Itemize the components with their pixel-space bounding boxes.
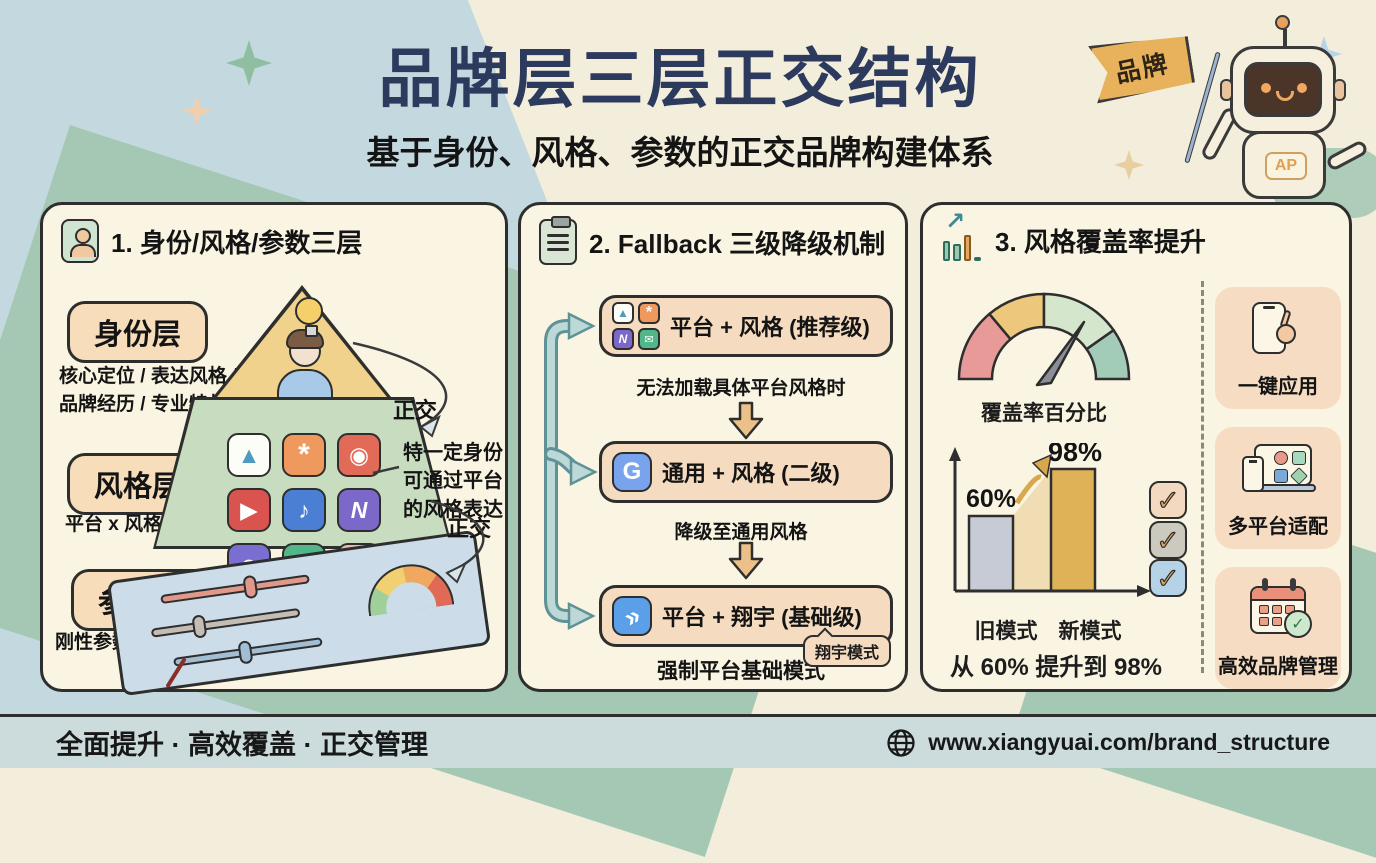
check-badge: ✓	[1149, 481, 1187, 519]
footer-site: www.xiangyuai.com/brand_structure	[886, 728, 1330, 758]
robot-mascot: 品牌 AP	[1138, 10, 1368, 205]
bar-old-mode	[969, 516, 1013, 591]
down-arrow-icon	[727, 541, 765, 581]
footer-url: www.xiangyuai.com/brand_structure	[928, 729, 1330, 756]
platform-icon: *	[638, 302, 660, 324]
page-subtitle: 基于身份、风格、参数的正交品牌构建体系	[280, 126, 1080, 174]
gauge-label: 覆盖率百分比	[939, 397, 1149, 427]
robot-eye	[1297, 83, 1307, 93]
platform-icon: ◉	[337, 433, 381, 477]
panel-coverage: ↗ 3. 风格覆盖率提升 覆盖率百分比 60% 98% 旧模式 新模式 从 60…	[920, 202, 1352, 692]
bar-new-label: 新模式	[1047, 615, 1133, 645]
benefit-card-one-tap: 一键应用	[1215, 287, 1341, 409]
platform-icon: ▲	[612, 302, 634, 324]
bar-old-value: 60%	[966, 485, 1016, 513]
slider-knob	[191, 614, 207, 639]
fallback-step-2: G 通用 + 风格 (二级)	[599, 441, 893, 503]
platform-icon: ▶	[227, 488, 271, 532]
robot-right-arm	[1325, 139, 1369, 172]
avatar-body	[277, 369, 333, 401]
panel2-header: 2. Fallback 三级降级机制	[539, 219, 885, 265]
step2-caption: 降级至通用风格	[591, 517, 891, 544]
platform-icon: ▲	[227, 433, 271, 477]
flag-label: 品牌	[1112, 44, 1172, 90]
calendar-check-icon: ✓	[1238, 578, 1318, 650]
footer-slogan: 全面提升 · 高效覆盖 · 正交管理	[56, 723, 428, 762]
bar-old-label: 旧模式	[963, 615, 1049, 645]
param-slider	[173, 637, 323, 667]
benefit-card-multi-platform: 多平台适配	[1215, 427, 1341, 549]
check-badge: ✓	[1149, 521, 1187, 559]
globe-icon	[886, 728, 916, 758]
robot-body: AP	[1242, 131, 1326, 199]
robot-antenna-ball	[1275, 15, 1290, 30]
robot-ear	[1333, 79, 1346, 101]
platform-mini-grid: ▲ * N ✉	[612, 302, 660, 350]
panel3-title: 3. 风格覆盖率提升	[995, 222, 1206, 259]
step2-label: 通用 + 风格 (二级)	[662, 456, 840, 488]
devices-icon	[1238, 438, 1318, 510]
benefit-label: 一键应用	[1238, 370, 1318, 399]
platform-icon: N	[337, 488, 381, 532]
benefit-label: 高效品牌管理	[1218, 650, 1338, 679]
phone-tap-icon	[1238, 298, 1318, 370]
down-arrow-icon	[727, 401, 765, 441]
bar-new-mode	[1051, 469, 1095, 591]
growth-chart-icon: ↗	[941, 219, 983, 261]
slider-knob	[242, 575, 258, 600]
panel-fallback: 2. Fallback 三级降级机制 ▲ * N ✉ 平台 + 风格 (推荐级)…	[518, 202, 908, 692]
step3-label: 平台 + 翔宇 (基础级)	[662, 600, 862, 632]
panel2-title: 2. Fallback 三级降级机制	[589, 224, 885, 261]
mini-gauge-icon	[363, 559, 455, 617]
slider-knob	[237, 640, 253, 665]
orthogonal-label-top: 正交	[393, 393, 437, 425]
orthogonal-label-bottom: 正交	[447, 511, 491, 543]
coverage-caption: 从 60% 提升到 98%	[923, 647, 1189, 682]
robot-eye	[1261, 83, 1271, 93]
fallback-step-1: ▲ * N ✉ 平台 + 风格 (推荐级)	[599, 295, 893, 357]
platform-icon: ♪	[282, 488, 326, 532]
robot-head	[1230, 46, 1336, 134]
generic-style-icon: G	[612, 452, 652, 492]
panel-identity-layers: 1. 身份/风格/参数三层 身份层 核心定位 / 表达风格 / 品牌经历 / 专…	[40, 202, 508, 692]
benefit-card-brand-management: ✓ 高效品牌管理	[1215, 567, 1341, 689]
robot-ear	[1220, 79, 1233, 101]
platform-icon: ✉	[638, 328, 660, 350]
xiangyu-mode-tag: 翔宇模式	[803, 635, 891, 667]
robot-chest-badge: AP	[1265, 152, 1307, 180]
dashed-divider	[1201, 281, 1204, 673]
panel1-title: 1. 身份/风格/参数三层	[111, 223, 362, 260]
platform-icon: N	[612, 328, 634, 350]
check-badge: ✓	[1149, 559, 1187, 597]
panel3-header: ↗ 3. 风格覆盖率提升	[941, 219, 1206, 261]
coverage-gauge	[939, 279, 1149, 389]
coverage-bar-chart: 60% 98%	[939, 443, 1159, 618]
param-slider	[160, 574, 310, 604]
clipboard-icon	[539, 219, 577, 265]
pyramid-bottom-params	[107, 530, 492, 697]
robot-face-screen	[1244, 62, 1322, 117]
robot-smile	[1276, 91, 1294, 101]
bar-new-value: 98%	[1048, 443, 1102, 467]
platform-icon: *	[282, 433, 326, 477]
up-arrow-icon: ↗	[945, 207, 965, 236]
brand-flag: 品牌	[1088, 31, 1196, 104]
robot-antenna	[1283, 29, 1287, 46]
footer-bar: 全面提升 · 高效覆盖 · 正交管理 www.xiangyuai.com/bra…	[0, 714, 1376, 768]
identity-layer-pill: 身份层	[67, 301, 208, 363]
page-title: 品牌层三层正交结构	[300, 28, 1060, 120]
xiangyu-wing-icon: »	[612, 596, 652, 636]
panel1-header: 1. 身份/风格/参数三层	[61, 219, 362, 263]
step1-label: 平台 + 风格 (推荐级)	[670, 310, 870, 342]
fallback-pipeline	[531, 300, 601, 650]
param-slider	[151, 608, 301, 638]
lightbulb-icon	[295, 297, 323, 325]
id-card-icon	[61, 219, 99, 263]
person-avatar	[272, 329, 340, 401]
benefit-label: 多平台适配	[1228, 510, 1328, 539]
step1-caption: 无法加载具体平台风格时	[591, 373, 891, 400]
